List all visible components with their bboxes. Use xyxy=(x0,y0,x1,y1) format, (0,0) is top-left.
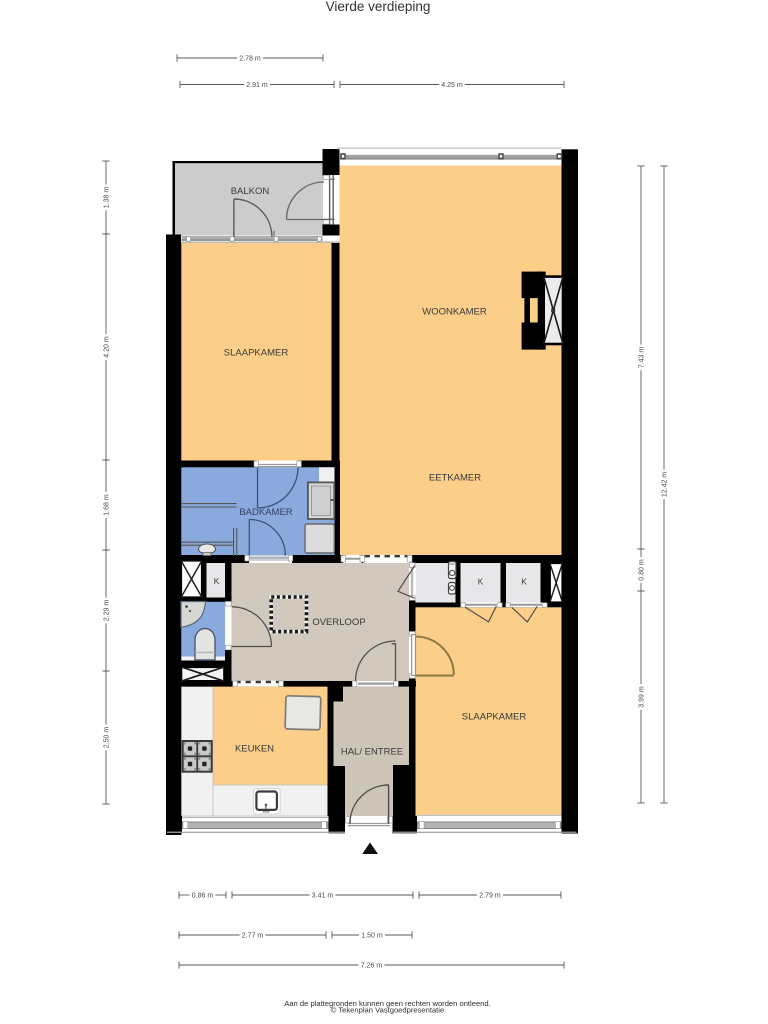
svg-text:1.68 m: 1.68 m xyxy=(104,494,111,516)
svg-text:2.29 m: 2.29 m xyxy=(104,600,111,622)
svg-text:4.25 m: 4.25 m xyxy=(441,82,463,89)
svg-text:0.80 m: 0.80 m xyxy=(639,559,646,581)
svg-text:3.41 m: 3.41 m xyxy=(312,893,334,900)
svg-text:K: K xyxy=(478,577,484,587)
svg-text:EETKAMER: EETKAMER xyxy=(429,473,481,484)
svg-text:BADKAMER: BADKAMER xyxy=(239,507,292,518)
svg-text:2.50 m: 2.50 m xyxy=(104,727,111,749)
svg-text:1.38 m: 1.38 m xyxy=(104,187,111,209)
svg-text:WOONKAMER: WOONKAMER xyxy=(422,307,487,318)
svg-text:Vierde verdieping: Vierde verdieping xyxy=(326,0,431,14)
svg-text:2.79 m: 2.79 m xyxy=(479,893,501,900)
svg-text:HAL/ ENTREE: HAL/ ENTREE xyxy=(341,747,403,758)
svg-text:SLAAPKAMER: SLAAPKAMER xyxy=(462,712,527,723)
svg-text:7.43 m: 7.43 m xyxy=(639,347,646,369)
svg-text:2.78 m: 2.78 m xyxy=(239,56,261,63)
svg-text:BALKON: BALKON xyxy=(231,186,270,197)
svg-text:KEUKEN: KEUKEN xyxy=(235,744,274,755)
svg-text:12.42 m: 12.42 m xyxy=(662,472,669,497)
svg-text:0.86 m: 0.86 m xyxy=(192,893,214,900)
svg-text:K: K xyxy=(214,576,220,586)
svg-text:2.77 m: 2.77 m xyxy=(242,933,264,940)
svg-text:7.26 m: 7.26 m xyxy=(361,963,383,970)
svg-text:SLAAPKAMER: SLAAPKAMER xyxy=(224,348,289,359)
svg-text:K: K xyxy=(521,577,527,587)
svg-text:OVERLOOP: OVERLOOP xyxy=(312,617,365,628)
svg-text:3.99 m: 3.99 m xyxy=(639,686,646,708)
svg-text:2.91 m: 2.91 m xyxy=(246,82,268,89)
svg-text:1.50 m: 1.50 m xyxy=(361,933,383,940)
svg-text:4.20 m: 4.20 m xyxy=(104,336,111,358)
svg-text:© Tekenplan Vastgoedpresentati: © Tekenplan Vastgoedpresentatie xyxy=(331,1006,444,1015)
